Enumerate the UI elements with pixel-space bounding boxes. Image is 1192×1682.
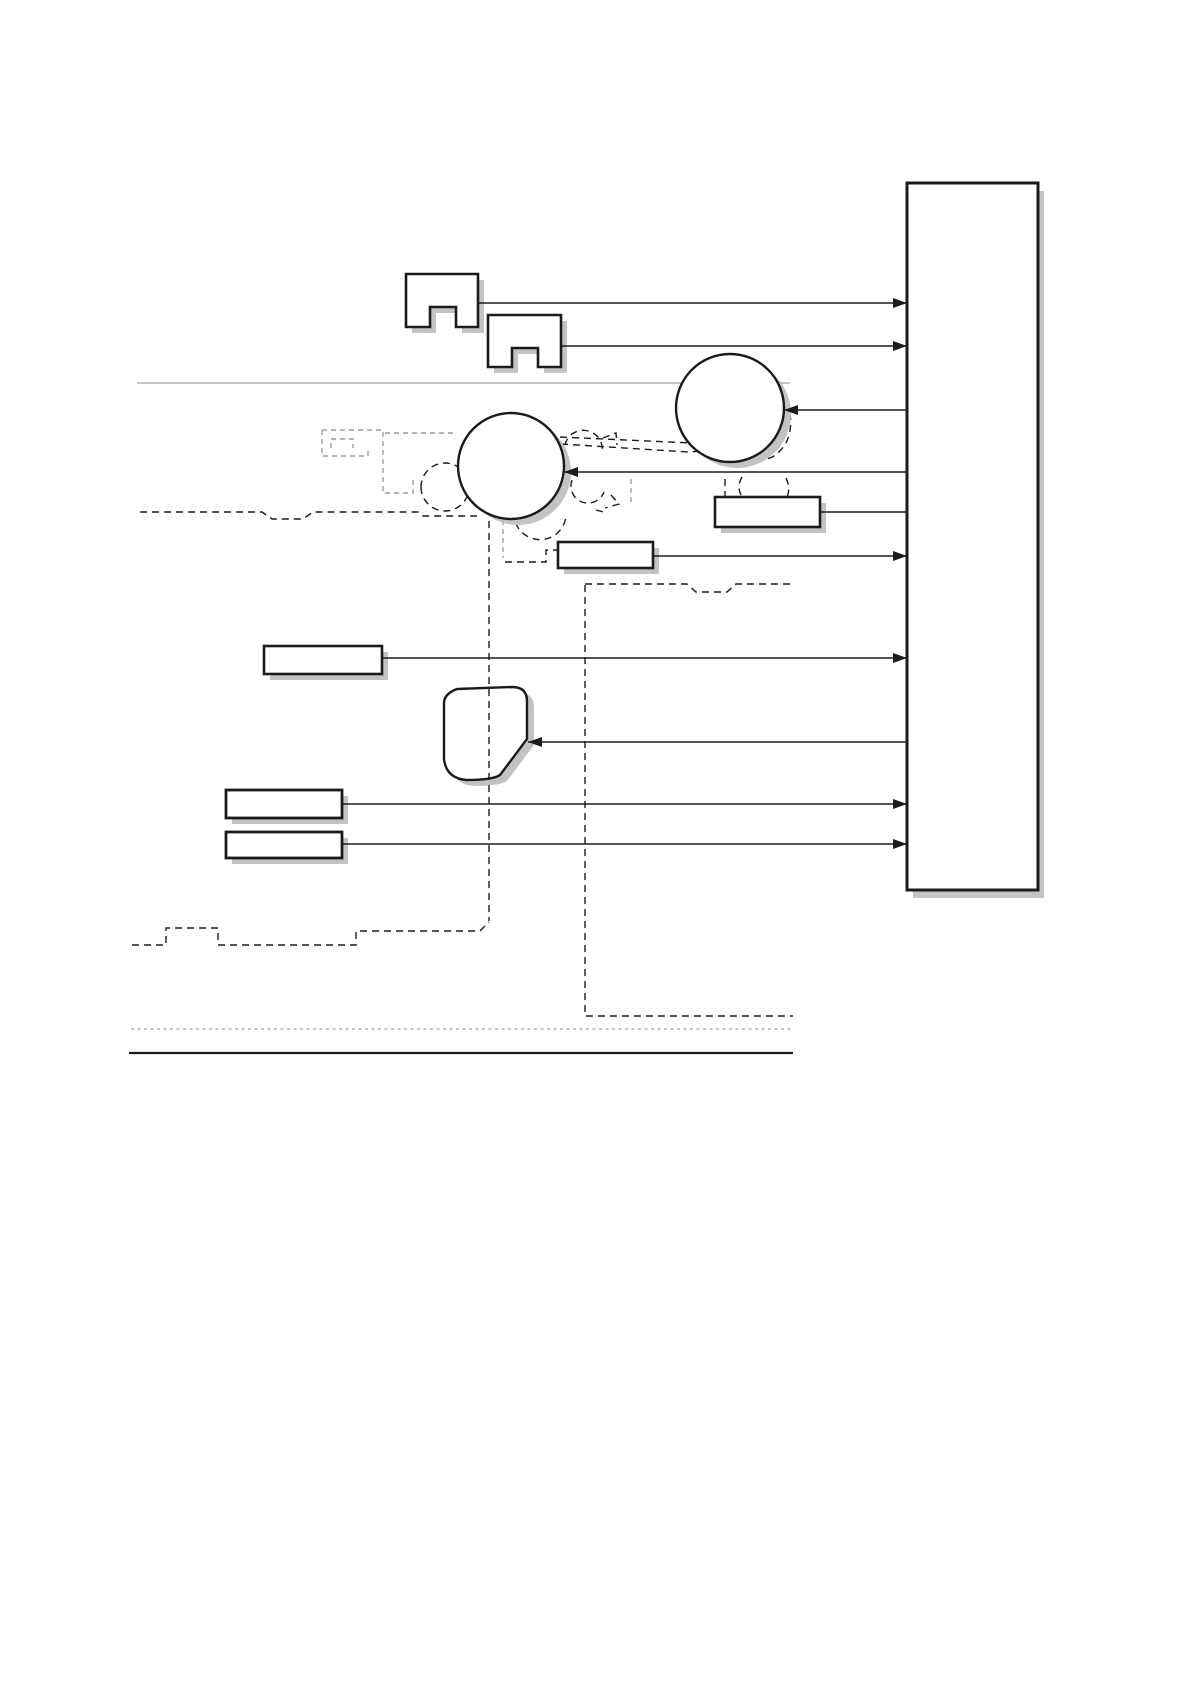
layer-overlay bbox=[489, 521, 793, 1016]
reg-assembly-right bbox=[383, 432, 413, 493]
component-box-b bbox=[558, 542, 653, 568]
component-box-a bbox=[715, 497, 820, 527]
link-box-c-to-board-arrowhead bbox=[893, 653, 907, 663]
reg-assembly-notch bbox=[331, 439, 353, 448]
link-box-b-to-board-arrowhead bbox=[893, 551, 907, 561]
paper-path-right bbox=[585, 584, 791, 592]
motor-icon-1 bbox=[406, 274, 478, 327]
component-box-d bbox=[226, 790, 342, 818]
roller-circle-right bbox=[676, 354, 784, 462]
tray-outline bbox=[132, 922, 489, 945]
nip-arc-top-right bbox=[564, 430, 602, 457]
nip-arc-right bbox=[571, 480, 604, 503]
component-box-c bbox=[264, 646, 382, 674]
guide-vertical-2 bbox=[585, 585, 793, 1016]
paper-path-left bbox=[140, 512, 477, 519]
nip-bracket bbox=[596, 495, 619, 513]
controller-board-box bbox=[907, 183, 1038, 890]
link-motor1-to-board-arrowhead bbox=[893, 298, 907, 308]
component-box-e bbox=[226, 832, 342, 858]
fuser-roller-dashes bbox=[725, 477, 789, 497]
manual-page bbox=[0, 0, 1192, 1682]
connector-step bbox=[505, 550, 557, 562]
reg-assembly-body bbox=[322, 430, 368, 456]
link-box-d-to-board-arrowhead bbox=[893, 799, 907, 809]
motor-icon-2 bbox=[488, 315, 561, 367]
link-motor2-to-board-arrowhead bbox=[893, 341, 907, 351]
roller-circle-left bbox=[458, 413, 564, 519]
wiring-diagram bbox=[0, 0, 1192, 1682]
link-box-e-to-board-arrowhead bbox=[893, 839, 907, 849]
layer-shapes bbox=[226, 183, 1038, 890]
